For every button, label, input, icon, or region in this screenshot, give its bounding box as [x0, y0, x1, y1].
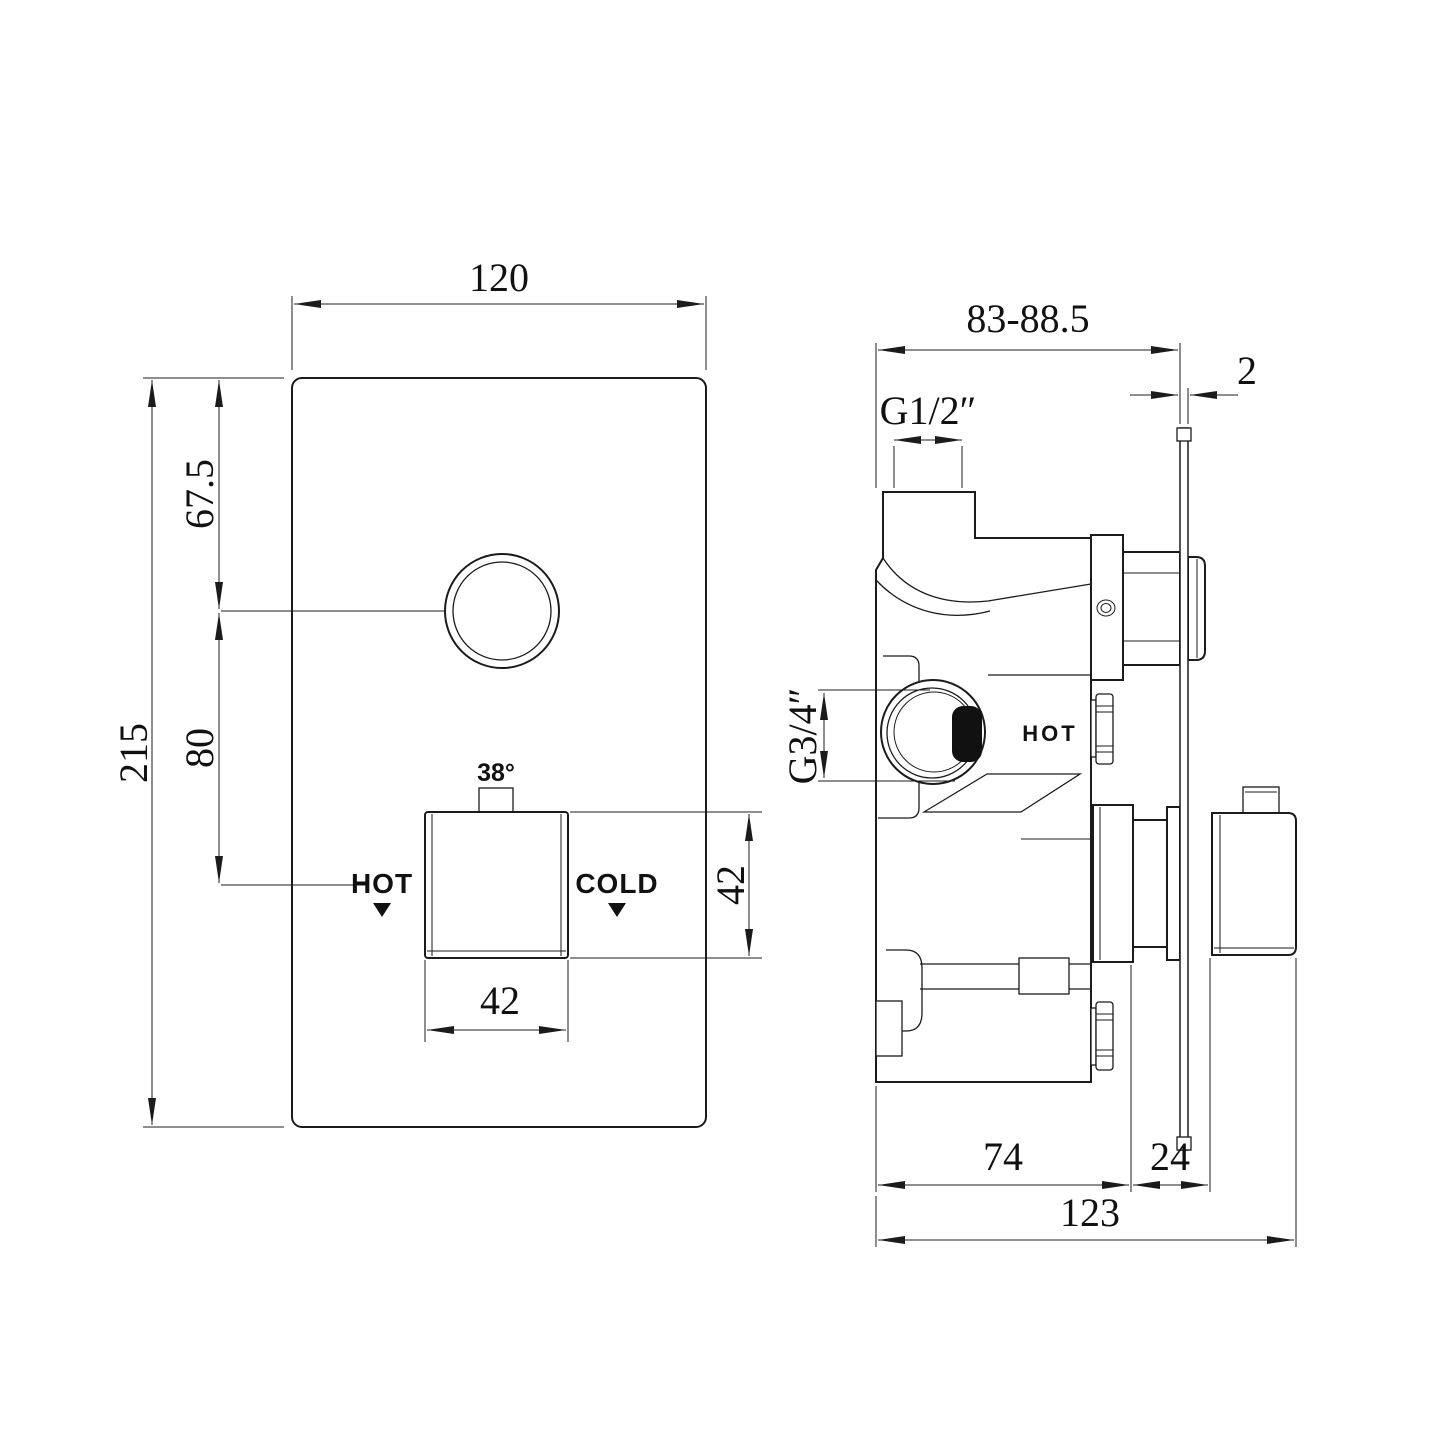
upper-valve-block — [1123, 552, 1180, 665]
dim-button-offset: 67.5 — [177, 380, 223, 609]
front-knob — [425, 812, 568, 958]
svg-text:24: 24 — [1150, 1134, 1190, 1179]
front-cold-label: COLD — [575, 868, 658, 899]
temp-stop-tab — [479, 788, 513, 812]
mount-foot — [876, 1001, 902, 1056]
svg-text:215: 215 — [111, 723, 156, 783]
svg-text:123: 123 — [1060, 1190, 1120, 1235]
temp-stop-label: 38° — [477, 759, 515, 787]
dim-inlet-thread: G1/2″ — [880, 388, 977, 488]
wall-plate-edge — [1177, 428, 1191, 1150]
dim-plate-thickness: 2 — [1130, 348, 1257, 424]
svg-text:120: 120 — [469, 255, 529, 300]
front-view: 38° HOT COLD 120 215 67.5 — [111, 255, 762, 1127]
side-knob — [1212, 787, 1296, 955]
svg-text:G3/4″: G3/4″ — [780, 688, 825, 785]
svg-text:2: 2 — [1237, 348, 1257, 393]
svg-text:74: 74 — [983, 1134, 1023, 1179]
g34-port — [881, 680, 985, 784]
svg-text:42: 42 — [708, 865, 753, 905]
diverter-stack — [1093, 805, 1180, 962]
dim-button-to-knob: 80 — [177, 613, 223, 883]
port-thread-shadow — [952, 706, 982, 762]
svg-text:80: 80 — [177, 728, 222, 768]
front-hot-label: HOT — [351, 868, 413, 899]
cartridge-flange — [1091, 535, 1123, 680]
svg-text:42: 42 — [480, 978, 520, 1023]
pipe-collar — [1019, 958, 1069, 994]
side-hot-label: HOT — [1022, 721, 1077, 746]
side-view: HOT 83-88.5 2 G1/2″ — [780, 296, 1296, 1247]
dim-front-width: 120 — [292, 255, 706, 370]
svg-text:G1/2″: G1/2″ — [880, 388, 977, 433]
hot-hex-connector — [1091, 694, 1113, 764]
dim-handle-depth: 24 — [1133, 958, 1210, 1192]
push-button — [445, 554, 559, 668]
svg-text:67.5: 67.5 — [177, 459, 222, 529]
side-temp-stop-tab — [1243, 787, 1279, 813]
svg-text:83-88.5: 83-88.5 — [966, 296, 1089, 341]
lower-hex-connector — [1091, 1002, 1113, 1070]
drawing-canvas: 38° HOT COLD 120 215 67.5 — [0, 0, 1445, 1445]
technical-drawing: 38° HOT COLD 120 215 67.5 — [0, 0, 1445, 1445]
